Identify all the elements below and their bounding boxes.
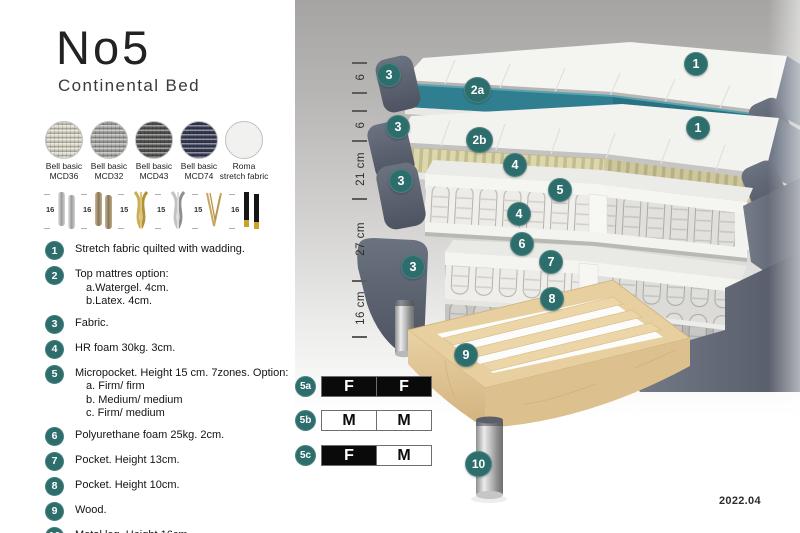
- leg-height-label: 16: [231, 205, 239, 214]
- spec-number-badge: 8: [45, 477, 64, 496]
- fabric-swatch-circle: [45, 121, 83, 159]
- spec-text: Fabric.: [75, 317, 109, 334]
- info-panel: No5 Continental Bed Bell basicMCD36Bell …: [0, 0, 295, 533]
- spec-text: Metal leg. Height 16cm.: [75, 529, 191, 533]
- dimension-tick: [352, 336, 367, 338]
- fabric-swatch: Bell basicMCD36: [45, 121, 83, 181]
- leg-option: 16: [82, 185, 119, 237]
- leg-height-label: 15: [157, 205, 165, 214]
- callout-4-bottom: 4: [507, 202, 531, 226]
- spec-item: 6Polyurethane foam 25kg. 2cm.: [45, 429, 293, 446]
- product-title: No5: [56, 20, 151, 75]
- spec-sub-option: b.Latex. 4cm.: [75, 295, 169, 309]
- spec-text: Wood.: [75, 504, 107, 521]
- cylinder-silver-icon: [55, 190, 79, 230]
- fabric-swatch: Bell basicMCD32: [90, 121, 128, 181]
- spec-item: 5Micropocket. Height 15 cm. 7zones. Opti…: [45, 367, 293, 421]
- dimension-tick: [352, 92, 367, 94]
- dimension-tick: [352, 62, 367, 64]
- fabric-swatch-circle: [90, 121, 128, 159]
- callout-3-box: 3: [401, 255, 425, 279]
- firmness-cells: M M: [321, 410, 432, 431]
- cylinder-bronze-icon: [92, 190, 116, 230]
- leg-option: 15: [119, 185, 156, 237]
- spec-number-badge: 5: [45, 365, 64, 384]
- version-label: 2022.04: [719, 495, 761, 507]
- spec-text: Top mattres option:a.Watergel. 4cm.b.Lat…: [75, 268, 169, 309]
- leg-height-label: 15: [120, 205, 128, 214]
- spec-number-badge: 9: [45, 502, 64, 521]
- fabric-swatch-label: Bell basicMCD32: [91, 162, 127, 181]
- spec-item: 2Top mattres option:a.Watergel. 4cm.b.La…: [45, 268, 293, 309]
- straight-black-gold-icon: [240, 190, 264, 230]
- spec-text: Polyurethane foam 25kg. 2cm.: [75, 429, 224, 446]
- leg-height-label: 16: [46, 205, 54, 214]
- dimension-tick: [352, 110, 367, 112]
- spec-sub-option: a. Firm/ firm: [75, 380, 288, 394]
- firmness-badge-5a: 5a: [295, 376, 316, 397]
- illustration-panel: 6 6 21 cm 27 cm 16 cm 3 2a 1 3 2b 1 4 5 …: [295, 0, 800, 533]
- firmness-cell: F: [322, 377, 376, 396]
- leg-height-label: 16: [83, 205, 91, 214]
- dimension-label: 21 cm: [355, 152, 367, 186]
- dimension-label: 27 cm: [355, 222, 367, 256]
- spec-item: 4HR foam 30kg. 3cm.: [45, 342, 293, 359]
- product-subtitle: Continental Bed: [58, 76, 200, 96]
- spec-sub-option: c. Firm/ medium: [75, 407, 288, 421]
- spec-text: Pocket. Height 13cm.: [75, 454, 180, 471]
- dimension-tick: [352, 198, 367, 200]
- firmness-badge-5b: 5b: [295, 410, 316, 431]
- callout-1-top: 1: [684, 52, 708, 76]
- spec-item: 1Stretch fabric quilted with wadding.: [45, 243, 293, 260]
- dimension-label: 6: [355, 122, 367, 129]
- leg-option: 15: [193, 185, 230, 237]
- callout-5: 5: [548, 178, 572, 202]
- spec-text: Pocket. Height 10cm.: [75, 479, 180, 496]
- spec-text: HR foam 30kg. 3cm.: [75, 342, 175, 359]
- spec-item: 3Fabric.: [45, 317, 293, 334]
- spec-item: 10Metal leg. Height 16cm.: [45, 529, 293, 533]
- firmness-badge-5c: 5c: [295, 445, 316, 466]
- product-sheet: No5 Continental Bed Bell basicMCD36Bell …: [0, 0, 800, 533]
- callout-3-topper2: 3: [386, 115, 410, 139]
- spec-text: Stretch fabric quilted with wadding.: [75, 243, 245, 260]
- callout-4-top: 4: [503, 153, 527, 177]
- firmness-cell: M: [377, 411, 431, 430]
- fabric-swatches: Bell basicMCD36Bell basicMCD32Bell basic…: [45, 121, 263, 181]
- leg-options: 161615151516: [45, 185, 267, 237]
- leg-option: 16: [45, 185, 82, 237]
- fabric-swatch: Bell basicMCD43: [135, 121, 173, 181]
- fabric-swatch-label: Bell basicMCD43: [136, 162, 172, 181]
- fabric-swatch-circle: [225, 121, 263, 159]
- fabric-swatch: Romastretch fabric: [225, 121, 263, 181]
- spec-number-badge: 10: [45, 527, 64, 533]
- spec-list: 1Stretch fabric quilted with wadding.2To…: [45, 243, 293, 533]
- firmness-row-5a: 5a F F: [295, 376, 432, 397]
- spec-text: Micropocket. Height 15 cm. 7zones. Optio…: [75, 367, 288, 421]
- fabric-swatch-label: Bell basicMCD74: [181, 162, 217, 181]
- twist-silver-icon: [166, 190, 190, 230]
- spec-sub-option: b. Medium/ medium: [75, 394, 288, 408]
- dimension-label: 6: [355, 74, 367, 81]
- dimension-tick: [352, 280, 367, 282]
- firmness-cell: M: [322, 411, 376, 430]
- spec-number-badge: 3: [45, 315, 64, 334]
- spec-number-badge: 4: [45, 340, 64, 359]
- spec-number-badge: 6: [45, 427, 64, 446]
- fabric-swatch-circle: [180, 121, 218, 159]
- callout-8: 8: [540, 287, 564, 311]
- fabric-swatch-label: Romastretch fabric: [220, 162, 269, 181]
- spec-item: 7Pocket. Height 13cm.: [45, 454, 293, 471]
- callout-3-topper1: 3: [377, 63, 401, 87]
- callout-2b: 2b: [466, 127, 493, 153]
- firmness-cells: F M: [321, 445, 432, 466]
- hairpin-gold-icon: [203, 190, 227, 230]
- firmness-cell: F: [377, 377, 431, 396]
- spec-item: 9Wood.: [45, 504, 293, 521]
- fabric-swatch-circle: [135, 121, 173, 159]
- spec-number-badge: 1: [45, 241, 64, 260]
- callout-3-mattress: 3: [389, 169, 413, 193]
- callout-2a: 2a: [464, 77, 491, 103]
- leg-option: 16: [230, 185, 267, 237]
- firmness-cell: M: [377, 446, 431, 465]
- callout-7: 7: [539, 250, 563, 274]
- fabric-swatch: Bell basicMCD74: [180, 121, 218, 181]
- callout-1-mid: 1: [686, 116, 710, 140]
- spec-item: 8Pocket. Height 10cm.: [45, 479, 293, 496]
- firmness-row-5b: 5b M M: [295, 410, 432, 431]
- spec-number-badge: 7: [45, 452, 64, 471]
- twist-gold-icon: [129, 190, 153, 230]
- callout-9: 9: [454, 343, 478, 367]
- dimension-label: 16 cm: [355, 291, 367, 325]
- leg-option: 15: [156, 185, 193, 237]
- leg-height-label: 15: [194, 205, 202, 214]
- firmness-row-5c: 5c F M: [295, 445, 432, 466]
- firmness-cell: F: [322, 446, 376, 465]
- spec-sub-option: a.Watergel. 4cm.: [75, 282, 169, 296]
- dimension-tick: [352, 140, 367, 142]
- callout-10: 10: [465, 451, 492, 477]
- firmness-cells: F F: [321, 376, 432, 397]
- fabric-swatch-label: Bell basicMCD36: [46, 162, 82, 181]
- spec-number-badge: 2: [45, 266, 64, 285]
- callout-6: 6: [510, 232, 534, 256]
